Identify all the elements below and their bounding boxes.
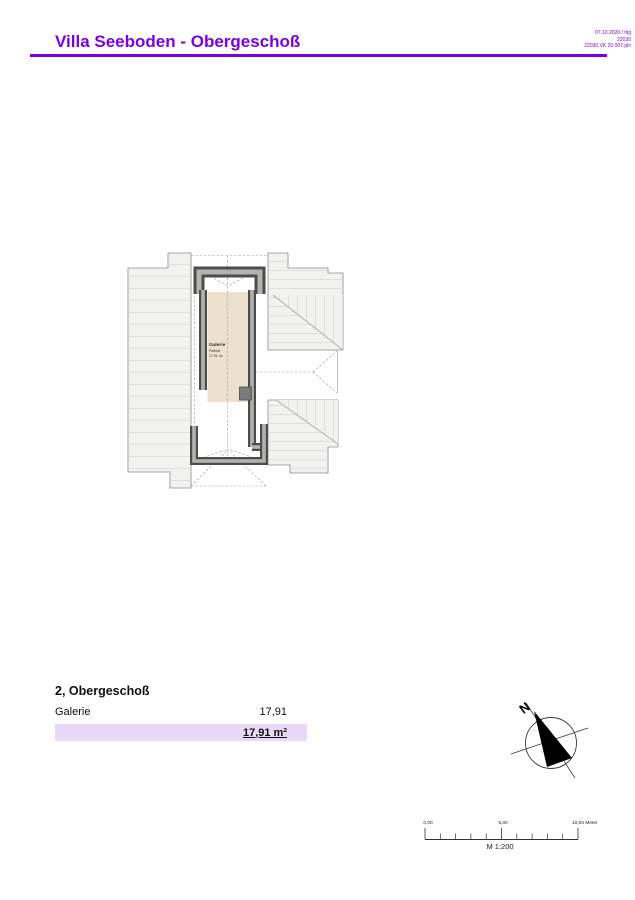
scale-label-0: 0,00 bbox=[423, 820, 433, 826]
room-label: Galerie bbox=[55, 706, 90, 718]
chimney-block bbox=[240, 387, 252, 400]
room-floor-label: Parkett bbox=[209, 349, 220, 353]
scale-bar: 0,00 5,00 10,00 Meter M 1:200 bbox=[413, 812, 605, 856]
summary-heading: 2, Obergeschoß bbox=[55, 684, 307, 698]
scale-label-10: 10,00 Meter bbox=[572, 820, 598, 826]
scale-major-ticks bbox=[425, 828, 578, 840]
meta-line-file: 22030 VK 20 007.pln bbox=[584, 43, 631, 50]
floor-plan-drawing: Galerie Parkett 17,91 m² bbox=[125, 250, 345, 495]
table-row: Galerie 17,91 bbox=[55, 706, 307, 718]
plan-sheet-page: Villa Seeboden - Obergeschoß 07.10.2020 … bbox=[0, 0, 635, 900]
north-label: N bbox=[516, 699, 533, 717]
room-area-value: 17,91 bbox=[259, 706, 287, 718]
roof-plane-bottom-right bbox=[268, 400, 338, 473]
drawing-meta: 07.10.2020 / hlg 22030 22030 VK 20 007.p… bbox=[584, 30, 631, 50]
scale-ratio-label: M 1:200 bbox=[486, 842, 513, 851]
total-area-band: 17,91 m² bbox=[55, 724, 307, 741]
scale-label-5: 5,00 bbox=[498, 820, 508, 826]
header-rule bbox=[30, 54, 607, 57]
roof-plane-top-right bbox=[268, 253, 343, 350]
page-title: Villa Seeboden - Obergeschoß bbox=[55, 32, 300, 52]
compass-rose: N bbox=[505, 690, 600, 785]
room-name-label: Galerie bbox=[209, 342, 226, 348]
room-area-label: 17,91 m² bbox=[209, 354, 224, 358]
total-area-value: 17,91 m² bbox=[243, 727, 287, 739]
north-needle bbox=[534, 711, 572, 767]
roof-plane-left bbox=[128, 253, 191, 488]
area-summary: 2, Obergeschoß Galerie 17,91 17,91 m² bbox=[55, 684, 307, 741]
